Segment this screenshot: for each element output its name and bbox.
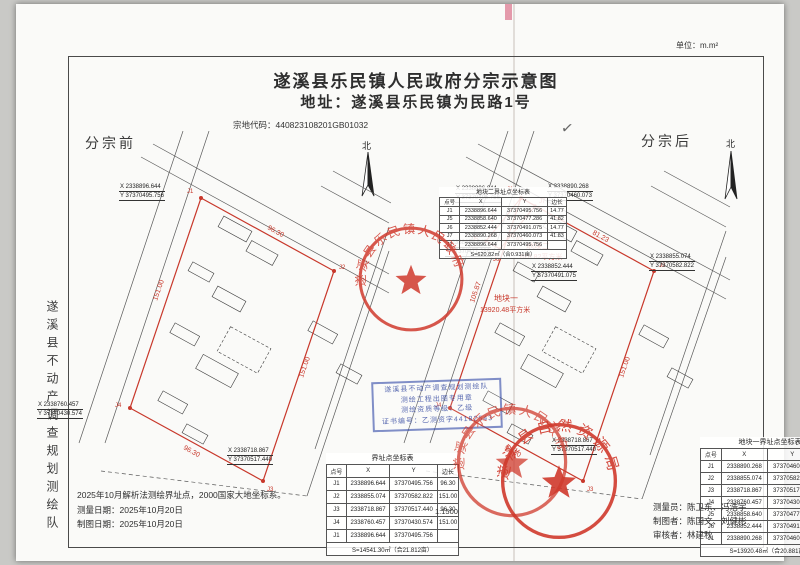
point-label: J2 xyxy=(339,265,346,271)
table-row: J12338896.64437370495.756 xyxy=(327,530,459,543)
boundary-before xyxy=(130,198,334,481)
coord-annotation: X 2338896.644Y 37370495.756 xyxy=(119,183,165,201)
edge-label: 96.30 xyxy=(266,225,285,240)
table-title: 地块一界址点坐标表 xyxy=(700,437,800,447)
surveyor-names: 测量员：陈卫东、冯浩宇 xyxy=(653,501,747,513)
parcel1-coordinate-table: 地块一界址点坐标表 点号X Y边长 J12338890.26837370460.… xyxy=(700,437,800,557)
table-summary-row: S=13920.48㎡（合20.881亩） xyxy=(701,545,800,557)
drafter-names: 制图者：陈国文、刘健彬 xyxy=(653,515,747,527)
table-row: J12338896.64437370495.75696.30 xyxy=(327,478,459,491)
table-row: J22338855.07437370582.822151.00 xyxy=(327,491,459,504)
table-summary-row: S=14541.30㎡（合21.812亩） xyxy=(327,543,459,556)
edge-label: 151.00 xyxy=(152,279,166,302)
table-row: J22338855.07437370582.822151.00 xyxy=(701,473,800,485)
gov-round-stamp: 遂溪县乐民镇人民政府 xyxy=(355,223,467,335)
parcel-code: 宗地代码：440823108201GB01032 xyxy=(233,119,368,131)
edge-label: 96.30 xyxy=(182,445,201,460)
table-row: J12338890.26837370460.07381.23 xyxy=(701,461,800,473)
unit-label: 单位：m.m² xyxy=(676,40,718,51)
natural-resources-stamp: 遂溪县自然资源局 xyxy=(497,419,621,543)
survey-team-strip: 遂溪县不动产调查规划测绘队 xyxy=(44,300,61,550)
checker-name: 审核者：林建秋 xyxy=(653,529,713,541)
table-title: 界址点坐标表 xyxy=(326,453,459,463)
page-subtitle: 地址：遂溪县乐民镇为民路1号 xyxy=(69,91,763,112)
edge-label: 151.00 xyxy=(298,356,312,379)
table-row: J12338890.26837370460.073 xyxy=(701,533,800,545)
table-title: 地块二界址点坐标表 xyxy=(439,187,567,196)
page-title: 遂溪县乐民镇人民政府分宗示意图 xyxy=(69,67,763,92)
coord-annotation: X 2338852.444Y 37370491.075 xyxy=(531,263,577,281)
before-coordinate-table: 界址点坐标表 点号X Y边长 J12338896.64437370495.756… xyxy=(326,453,459,556)
coord-annotation: X 2338718.867Y 37370517.440 xyxy=(227,447,273,465)
edge-label: 105.87 xyxy=(469,281,483,304)
parcel1-name: 地块一 xyxy=(494,293,518,303)
map-scale: 1:1500 xyxy=(435,507,458,516)
table-row: J42338760.45737370430.574151.00 xyxy=(327,517,459,530)
point-label: J4 xyxy=(115,403,122,409)
scanned-sheet: 单位：m.m² 遂溪县乐民镇人民政府分宗示意图 地址：遂溪县乐民镇为民路1号 宗… xyxy=(16,4,784,561)
table-row: J12338896.64437370495.75614.77 xyxy=(440,207,567,216)
parcel1-area: 13920.48平方米 xyxy=(480,305,530,314)
point-label: J1 xyxy=(187,189,194,195)
map-frame: 遂溪县乐民镇人民政府分宗示意图 地址：遂溪县乐民镇为民路1号 宗地代码：4408… xyxy=(68,56,764,548)
table-row: J32338718.86737370517.44096.30 xyxy=(701,485,800,497)
coord-annotation: X 2338855.074Y 37370582.822 xyxy=(649,253,695,271)
map-date: 制图日期：2025年10月20日 xyxy=(77,518,183,530)
survey-date: 测量日期：2025年10月20日 xyxy=(77,504,183,516)
survey-note: 2025年10月解析法测绘界址点，2000国家大地坐标系。 xyxy=(77,489,286,501)
edge-label: 151.00 xyxy=(618,356,632,379)
scanner-artifact xyxy=(505,4,512,20)
